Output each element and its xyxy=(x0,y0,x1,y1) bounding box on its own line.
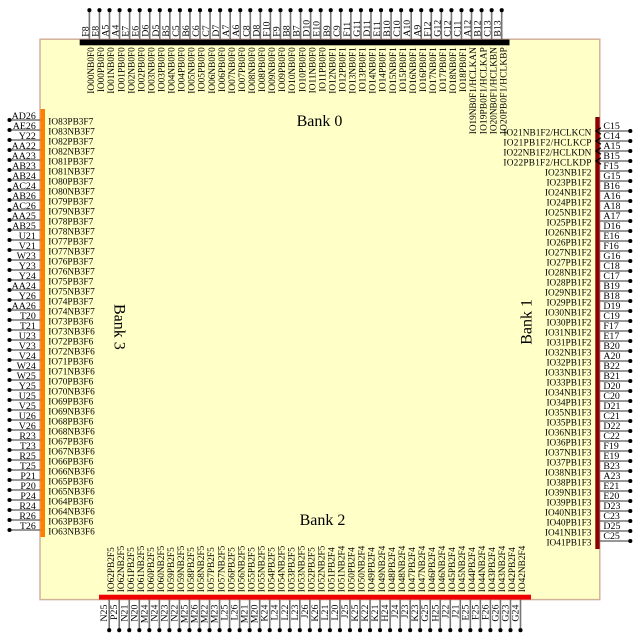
svg-text:IO66NB3F6: IO66NB3F6 xyxy=(48,467,95,477)
svg-text:IO24PB1F2: IO24PB1F2 xyxy=(546,198,591,208)
svg-text:IO35NB1F3: IO35NB1F3 xyxy=(545,408,592,418)
svg-text:IO77PB3F7: IO77PB3F7 xyxy=(48,237,93,247)
svg-text:IO56PB2F5: IO56PB2F5 xyxy=(227,547,237,592)
svg-text:IO13PB0F1: IO13PB0F1 xyxy=(359,47,369,92)
svg-text:IO04NB0F0: IO04NB0F0 xyxy=(168,47,178,94)
svg-text:IO17NB0F1: IO17NB0F1 xyxy=(429,47,439,94)
svg-text:IO65PB3F6: IO65PB3F6 xyxy=(48,477,93,487)
svg-text:IO82NB3F7: IO82NB3F7 xyxy=(48,147,95,157)
svg-text:IO02PB0F0: IO02PB0F0 xyxy=(137,47,147,92)
svg-text:IO06PB0F0: IO06PB0F0 xyxy=(218,47,228,92)
svg-text:IO21PB1F2/HCLKCP: IO21PB1F2/HCLKCP xyxy=(503,138,591,148)
svg-text:IO29NB1F2: IO29NB1F2 xyxy=(545,288,592,298)
svg-text:IO31PB1F2: IO31PB1F2 xyxy=(546,338,591,348)
svg-text:IO50NB2F4: IO50NB2F4 xyxy=(358,545,368,592)
svg-text:Bank 2: Bank 2 xyxy=(300,512,346,529)
svg-text:Bank 3: Bank 3 xyxy=(111,304,128,350)
svg-text:IO78NB3F7: IO78NB3F7 xyxy=(48,227,95,237)
svg-text:IO10PB0F0: IO10PB0F0 xyxy=(298,47,308,92)
svg-text:IO43PB2F4: IO43PB2F4 xyxy=(488,547,498,592)
svg-text:IO57PB2F5: IO57PB2F5 xyxy=(207,547,217,592)
svg-text:IO70NB3F6: IO70NB3F6 xyxy=(48,387,95,397)
svg-text:IO39NB1F3: IO39NB1F3 xyxy=(545,488,592,498)
svg-text:IO23PB1F2: IO23PB1F2 xyxy=(546,178,591,188)
svg-text:IO73NB3F6: IO73NB3F6 xyxy=(48,327,95,337)
svg-text:IO34PB1F3: IO34PB1F3 xyxy=(546,398,591,408)
svg-text:IO43NB2F4: IO43NB2F4 xyxy=(498,545,508,592)
svg-text:IO37PB1F3: IO37PB1F3 xyxy=(546,458,591,468)
svg-text:Bank 0: Bank 0 xyxy=(297,113,343,130)
svg-text:IO36NB1F3: IO36NB1F3 xyxy=(545,428,592,438)
svg-text:IO59PB2F5: IO59PB2F5 xyxy=(167,547,177,592)
svg-text:IO32NB1F3: IO32NB1F3 xyxy=(545,348,592,358)
svg-text:IO42PB2F4: IO42PB2F4 xyxy=(508,547,518,592)
svg-text:IO56NB2F5: IO56NB2F5 xyxy=(237,545,247,592)
svg-text:IO81NB3F7: IO81NB3F7 xyxy=(48,167,95,177)
svg-text:IO44NB2F4: IO44NB2F4 xyxy=(478,545,488,592)
svg-text:IO47PB2F4: IO47PB2F4 xyxy=(408,547,418,592)
svg-text:IO16PB0F1: IO16PB0F1 xyxy=(419,47,429,92)
svg-text:IO21NB1F2/HCLKCN: IO21NB1F2/HCLKCN xyxy=(503,128,591,138)
svg-text:IO53NB2F5: IO53NB2F5 xyxy=(298,545,308,592)
svg-text:IO38NB1F3: IO38NB1F3 xyxy=(545,468,592,478)
svg-text:IO36PB1F3: IO36PB1F3 xyxy=(546,438,591,448)
svg-text:IO33NB1F3: IO33NB1F3 xyxy=(545,368,592,378)
svg-text:IO39PB1F3: IO39PB1F3 xyxy=(546,498,591,508)
svg-text:IO18NB0F1: IO18NB0F1 xyxy=(449,47,459,94)
svg-text:IO76PB3F7: IO76PB3F7 xyxy=(48,257,93,267)
svg-text:IO48PB2F4: IO48PB2F4 xyxy=(388,547,398,592)
svg-text:IO55NB2F5: IO55NB2F5 xyxy=(257,545,267,592)
svg-text:IO32PB1F3: IO32PB1F3 xyxy=(546,358,591,368)
svg-text:IO38PB1F3: IO38PB1F3 xyxy=(546,478,591,488)
svg-text:IO26NB1F2: IO26NB1F2 xyxy=(545,228,592,238)
svg-text:IO10NB0F0: IO10NB0F0 xyxy=(288,47,298,94)
svg-text:IO20NB0F1/HCLKBN: IO20NB0F1/HCLKBN xyxy=(489,47,499,134)
svg-text:G24: G24 xyxy=(511,605,522,622)
svg-text:IO70PB3F6: IO70PB3F6 xyxy=(48,377,93,387)
svg-text:IO15NB0F1: IO15NB0F1 xyxy=(389,47,399,94)
svg-text:IO02NB0F0: IO02NB0F0 xyxy=(127,47,137,94)
svg-text:IO31NB1F2: IO31NB1F2 xyxy=(545,328,592,338)
svg-text:IO41NB1F3: IO41NB1F3 xyxy=(545,528,592,538)
svg-text:IO20PB0F1/HCLKBP: IO20PB0F1/HCLKBP xyxy=(499,47,509,134)
svg-text:IO71NB3F6: IO71NB3F6 xyxy=(48,367,95,377)
svg-text:IO72PB3F6: IO72PB3F6 xyxy=(48,337,93,347)
svg-text:IO45NB2F4: IO45NB2F4 xyxy=(458,545,468,592)
svg-text:IO45PB2F4: IO45PB2F4 xyxy=(448,547,458,592)
svg-text:IO00NB0F0: IO00NB0F0 xyxy=(87,47,97,94)
svg-text:IO81PB3F7: IO81PB3F7 xyxy=(48,157,93,167)
svg-text:IO78PB3F7: IO78PB3F7 xyxy=(48,217,93,227)
svg-text:IO44PB2F4: IO44PB2F4 xyxy=(468,547,478,592)
svg-text:IO60PB2F5: IO60PB2F5 xyxy=(147,547,157,592)
svg-text:IO09PB0F0: IO09PB0F0 xyxy=(278,47,288,92)
svg-text:Bank 1: Bank 1 xyxy=(518,299,535,345)
svg-text:IO52NB2F5: IO52NB2F5 xyxy=(318,545,328,592)
svg-text:IO04PB0F0: IO04PB0F0 xyxy=(178,47,188,92)
svg-text:IO49PB2F4: IO49PB2F4 xyxy=(368,547,378,592)
svg-text:IO13NB0F1: IO13NB0F1 xyxy=(349,47,359,94)
svg-text:IO28NB1F2: IO28NB1F2 xyxy=(545,268,592,278)
svg-text:IO63PB3F6: IO63PB3F6 xyxy=(48,517,93,527)
svg-text:IO69NB3F6: IO69NB3F6 xyxy=(48,407,95,417)
svg-text:IO35PB1F3: IO35PB1F3 xyxy=(546,418,591,428)
svg-text:IO17PB0F1: IO17PB0F1 xyxy=(439,47,449,92)
svg-text:IO51PB2F4: IO51PB2F4 xyxy=(328,547,338,592)
svg-text:IO01NB0F0: IO01NB0F0 xyxy=(107,47,117,94)
svg-text:IO25PB1F2: IO25PB1F2 xyxy=(546,218,591,228)
svg-text:IO76NB3F7: IO76NB3F7 xyxy=(48,267,95,277)
svg-text:IO06NB0F0: IO06NB0F0 xyxy=(208,47,218,94)
svg-text:IO14NB0F1: IO14NB0F1 xyxy=(369,47,379,94)
svg-text:IO14PB0F1: IO14PB0F1 xyxy=(379,47,389,92)
svg-text:IO79NB3F7: IO79NB3F7 xyxy=(48,207,95,217)
svg-text:IO15PB0F1: IO15PB0F1 xyxy=(399,47,409,92)
svg-text:T26: T26 xyxy=(20,521,36,532)
svg-text:IO62PB2F5: IO62PB2F5 xyxy=(107,547,117,592)
svg-text:IO77NB3F7: IO77NB3F7 xyxy=(48,247,95,257)
svg-text:IO23NB1F2: IO23NB1F2 xyxy=(545,168,592,178)
svg-text:IO66PB3F6: IO66PB3F6 xyxy=(48,457,93,467)
svg-text:IO61PB2F5: IO61PB2F5 xyxy=(127,547,137,592)
svg-text:IO22NB1F2/HCLKDN: IO22NB1F2/HCLKDN xyxy=(503,148,591,158)
svg-text:IO22PB1F2/HCLKDP: IO22PB1F2/HCLKDP xyxy=(503,158,591,168)
svg-text:IO03PB0F0: IO03PB0F0 xyxy=(157,47,167,92)
svg-text:IO25NB1F2: IO25NB1F2 xyxy=(545,208,592,218)
svg-text:IO58PB2F5: IO58PB2F5 xyxy=(187,547,197,592)
svg-text:IO18PB0F1: IO18PB0F1 xyxy=(459,47,469,92)
svg-text:IO09NB0F0: IO09NB0F0 xyxy=(268,47,278,94)
svg-text:IO62NB2F5: IO62NB2F5 xyxy=(117,545,127,592)
svg-text:IO27PB1F2: IO27PB1F2 xyxy=(546,258,591,268)
svg-text:IO51NB2F4: IO51NB2F4 xyxy=(338,545,348,592)
svg-text:IO67PB3F6: IO67PB3F6 xyxy=(48,437,93,447)
svg-text:IO46NB2F4: IO46NB2F4 xyxy=(438,545,448,592)
svg-text:IO27NB1F2: IO27NB1F2 xyxy=(545,248,592,258)
svg-text:IO63NB3F6: IO63NB3F6 xyxy=(48,527,95,537)
svg-text:IO24NB1F2: IO24NB1F2 xyxy=(545,188,592,198)
svg-text:IO58NB2F5: IO58NB2F5 xyxy=(197,545,207,592)
svg-text:IO33PB1F3: IO33PB1F3 xyxy=(546,378,591,388)
svg-text:IO30PB1F2: IO30PB1F2 xyxy=(546,318,591,328)
svg-text:IO05NB0F0: IO05NB0F0 xyxy=(188,47,198,94)
svg-text:B13: B13 xyxy=(493,20,504,37)
svg-text:IO64PB3F6: IO64PB3F6 xyxy=(48,497,93,507)
svg-text:IO64NB3F6: IO64NB3F6 xyxy=(48,507,95,517)
svg-text:IO68NB3F6: IO68NB3F6 xyxy=(48,427,95,437)
svg-text:IO19NB0F1/HCLKAN: IO19NB0F1/HCLKAN xyxy=(469,47,479,134)
svg-text:IO12NB0F1: IO12NB0F1 xyxy=(328,47,338,94)
svg-text:IO37NB1F3: IO37NB1F3 xyxy=(545,448,592,458)
svg-text:IO80NB3F7: IO80NB3F7 xyxy=(48,187,95,197)
svg-text:IO12PB0F1: IO12PB0F1 xyxy=(339,47,349,92)
svg-text:IO83PB3F7: IO83PB3F7 xyxy=(48,117,93,127)
svg-text:IO52PB2F5: IO52PB2F5 xyxy=(308,547,318,592)
svg-text:IO28PB1F2: IO28PB1F2 xyxy=(546,278,591,288)
svg-text:IO49NB2F4: IO49NB2F4 xyxy=(378,545,388,592)
svg-text:IO73PB3F6: IO73PB3F6 xyxy=(48,317,93,327)
svg-text:IO59NB2F5: IO59NB2F5 xyxy=(177,545,187,592)
svg-text:IO19PB0F1/HCLKAP: IO19PB0F1/HCLKAP xyxy=(479,47,489,134)
svg-text:IO46PB2F4: IO46PB2F4 xyxy=(428,547,438,592)
svg-text:IO60NB2F5: IO60NB2F5 xyxy=(157,545,167,592)
svg-text:IO54PB2F5: IO54PB2F5 xyxy=(267,547,277,592)
svg-text:IO07NB0F0: IO07NB0F0 xyxy=(228,47,238,94)
svg-text:IO82PB3F7: IO82PB3F7 xyxy=(48,137,93,147)
svg-text:IO47NB2F4: IO47NB2F4 xyxy=(418,545,428,592)
svg-text:IO08PB0F0: IO08PB0F0 xyxy=(258,47,268,92)
svg-text:IO41PB1F3: IO41PB1F3 xyxy=(546,538,591,548)
svg-text:IO30NB1F2: IO30NB1F2 xyxy=(545,308,592,318)
svg-text:IO34NB1F3: IO34NB1F3 xyxy=(545,388,592,398)
svg-text:IO01PB0F0: IO01PB0F0 xyxy=(117,47,127,92)
svg-text:IO65NB3F6: IO65NB3F6 xyxy=(48,487,95,497)
svg-text:IO48NB2F4: IO48NB2F4 xyxy=(398,545,408,592)
svg-text:IO68PB3F6: IO68PB3F6 xyxy=(48,417,93,427)
svg-text:IO83NB3F7: IO83NB3F7 xyxy=(48,127,95,137)
svg-text:IO75NB3F7: IO75NB3F7 xyxy=(48,287,95,297)
svg-text:IO40PB1F3: IO40PB1F3 xyxy=(546,518,591,528)
svg-text:IO53PB2F5: IO53PB2F5 xyxy=(287,547,297,592)
svg-text:IO72NB3F6: IO72NB3F6 xyxy=(48,347,95,357)
svg-text:IO69PB3F6: IO69PB3F6 xyxy=(48,397,93,407)
svg-text:IO80PB3F7: IO80PB3F7 xyxy=(48,177,93,187)
svg-text:IO57NB2F5: IO57NB2F5 xyxy=(217,545,227,592)
svg-text:IO42NB2F4: IO42NB2F4 xyxy=(518,545,528,592)
svg-text:IO07PB0F0: IO07PB0F0 xyxy=(238,47,248,92)
svg-text:IO79PB3F7: IO79PB3F7 xyxy=(48,197,93,207)
svg-text:IO05PB0F0: IO05PB0F0 xyxy=(198,47,208,92)
svg-text:IO08NB0F0: IO08NB0F0 xyxy=(248,47,258,94)
svg-text:IO40NB1F3: IO40NB1F3 xyxy=(545,508,592,518)
svg-text:IO16NB0F1: IO16NB0F1 xyxy=(409,47,419,94)
svg-text:IO26PB1F2: IO26PB1F2 xyxy=(546,238,591,248)
svg-text:IO61NB2F5: IO61NB2F5 xyxy=(137,545,147,592)
svg-text:IO67NB3F6: IO67NB3F6 xyxy=(48,447,95,457)
svg-text:IO00PB0F0: IO00PB0F0 xyxy=(97,47,107,92)
svg-text:IO55PB2F5: IO55PB2F5 xyxy=(247,547,257,592)
svg-text:IO29PB1F2: IO29PB1F2 xyxy=(546,298,591,308)
svg-text:C25: C25 xyxy=(603,531,620,542)
svg-text:IO54NB2F5: IO54NB2F5 xyxy=(277,545,287,592)
svg-text:IO75PB3F7: IO75PB3F7 xyxy=(48,277,93,287)
svg-text:IO03NB0F0: IO03NB0F0 xyxy=(147,47,157,94)
svg-text:IO11PB0F0: IO11PB0F0 xyxy=(318,47,328,92)
svg-text:IO74NB3F7: IO74NB3F7 xyxy=(48,307,95,317)
svg-text:IO50PB2F4: IO50PB2F4 xyxy=(348,547,358,592)
svg-text:IO74PB3F7: IO74PB3F7 xyxy=(48,297,93,307)
svg-text:IO71PB3F6: IO71PB3F6 xyxy=(48,357,93,367)
svg-text:IO11NB0F0: IO11NB0F0 xyxy=(308,47,318,93)
